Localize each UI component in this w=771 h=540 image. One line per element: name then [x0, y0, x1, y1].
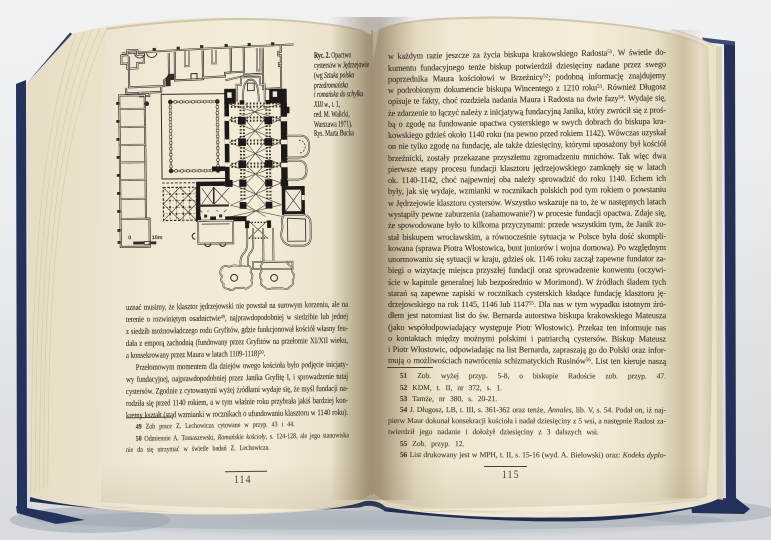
- svg-text:10m: 10m: [152, 235, 163, 241]
- svg-text:0: 0: [128, 235, 131, 241]
